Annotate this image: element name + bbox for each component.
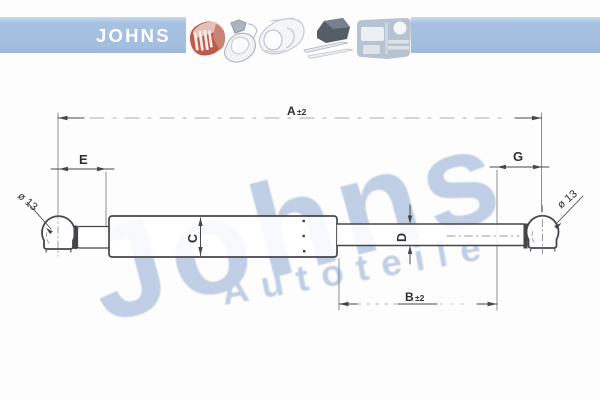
svg-text:D: D [395, 233, 409, 242]
svg-text:ø 13: ø 13 [15, 190, 40, 213]
svg-text:C: C [186, 234, 200, 243]
svg-text:E: E [79, 152, 88, 167]
svg-text:±2: ±2 [415, 293, 425, 303]
svg-text:A: A [287, 104, 296, 118]
svg-text:ø 13: ø 13 [555, 188, 580, 211]
svg-text:B: B [405, 290, 414, 304]
svg-text:±2: ±2 [297, 107, 307, 117]
svg-text:G: G [513, 149, 523, 164]
